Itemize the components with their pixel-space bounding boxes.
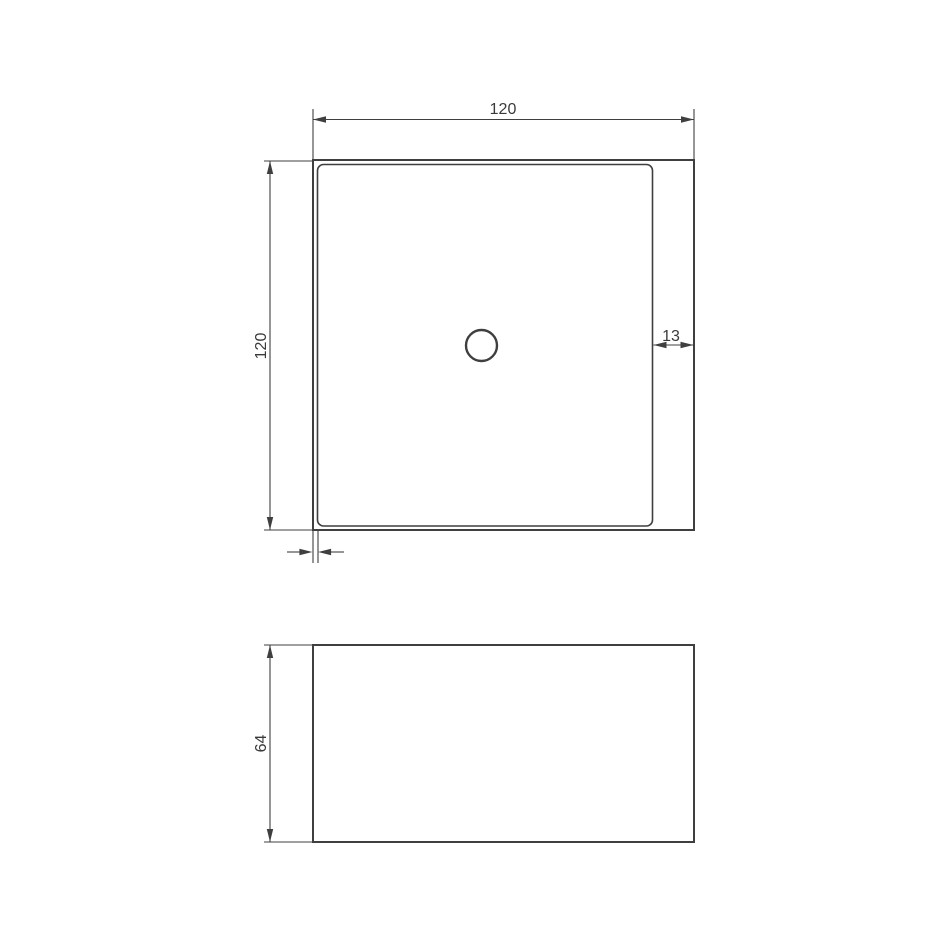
arrowhead-left-icon — [318, 549, 331, 555]
dimension-drawing: 120 120 13 — [0, 0, 950, 950]
arrowhead-down-icon — [267, 517, 273, 530]
top-view — [313, 160, 694, 530]
dimension-label-right-inset: 13 — [662, 328, 680, 345]
arrowhead-left-icon — [313, 116, 326, 122]
outer-square — [313, 160, 694, 530]
dimension-left-height: 120 — [253, 161, 313, 530]
front-body-rect — [313, 645, 694, 842]
center-hole-circle — [466, 330, 497, 361]
dimension-top-width: 120 — [313, 101, 694, 159]
arrowhead-right-icon — [299, 549, 312, 555]
arrowhead-right-icon — [681, 342, 694, 348]
dimension-right-inset: 13 — [654, 328, 694, 348]
arrowhead-down-icon — [267, 829, 273, 842]
front-view — [313, 645, 694, 842]
drawing-canvas: 120 120 13 — [0, 0, 950, 950]
arrowhead-up-icon — [267, 645, 273, 658]
dimension-label-width: 120 — [490, 101, 517, 118]
arrowhead-up-icon — [267, 161, 273, 174]
dimension-label-height: 120 — [253, 333, 270, 360]
dimension-label-front-height: 64 — [253, 735, 270, 753]
inner-panel — [318, 165, 653, 527]
dimension-front-height: 64 — [253, 645, 313, 842]
arrowhead-right-icon — [681, 116, 694, 122]
dimension-left-gap — [287, 530, 344, 563]
